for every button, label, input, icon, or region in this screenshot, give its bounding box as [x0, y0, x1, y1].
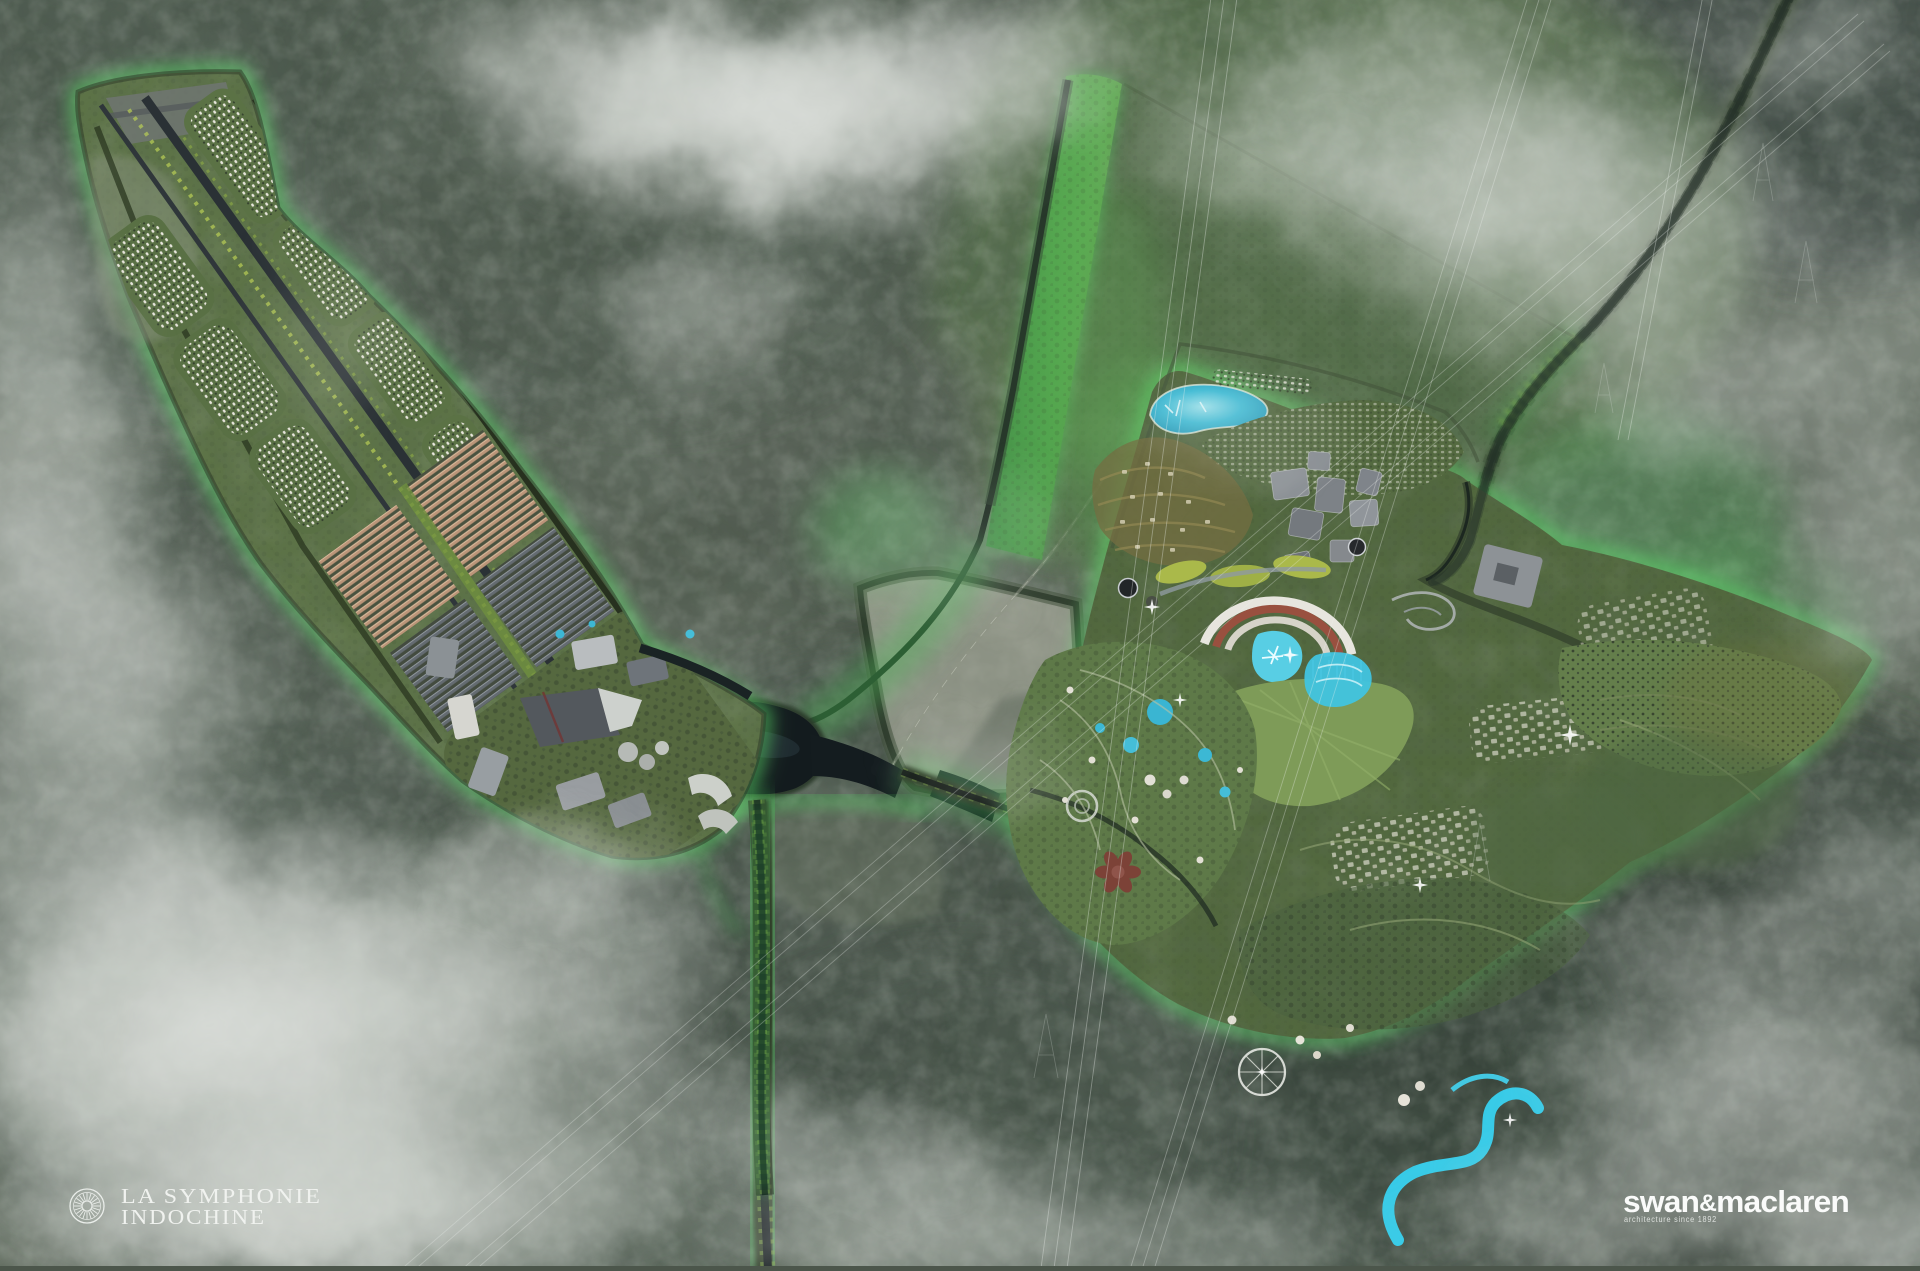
svg-text:INDOCHINE: INDOCHINE [121, 1205, 266, 1229]
svg-text:architecture since 1892: architecture since 1892 [1624, 1214, 1717, 1224]
